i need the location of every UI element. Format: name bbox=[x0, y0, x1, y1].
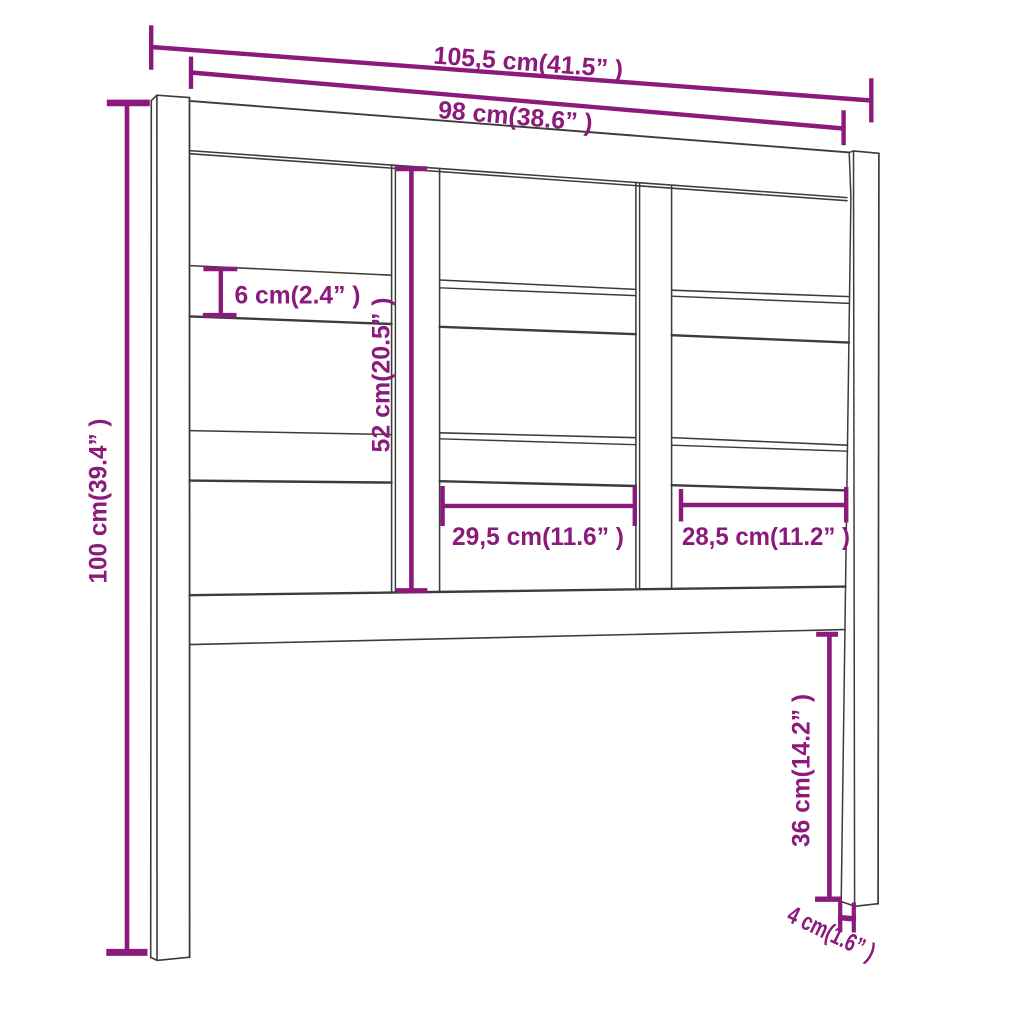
svg-text:36 cm(14.2” ): 36 cm(14.2” ) bbox=[788, 694, 816, 847]
svg-text:52 cm(20.5” ): 52 cm(20.5” ) bbox=[368, 298, 396, 453]
svg-text:100 cm(39.4” ): 100 cm(39.4” ) bbox=[85, 419, 113, 584]
svg-text:29,5 cm(11.6” ): 29,5 cm(11.6” ) bbox=[452, 523, 624, 551]
svg-text:28,5 cm(11.2” ): 28,5 cm(11.2” ) bbox=[682, 523, 850, 551]
svg-text:6 cm(2.4” ): 6 cm(2.4” ) bbox=[235, 282, 361, 310]
